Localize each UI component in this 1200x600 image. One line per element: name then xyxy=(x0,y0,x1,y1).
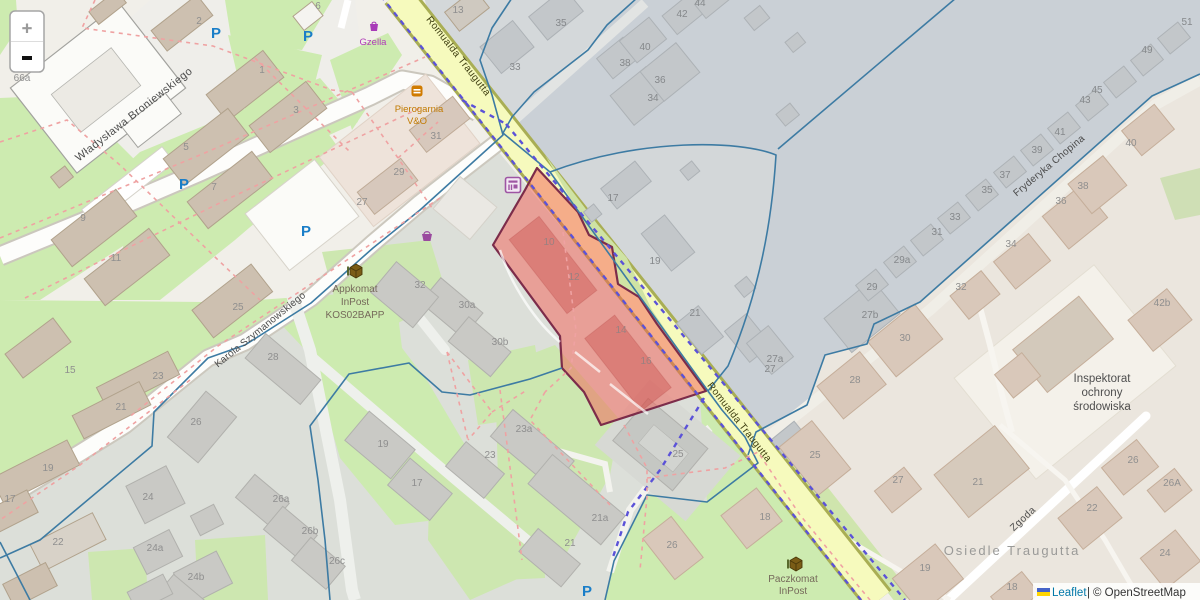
svg-text:© OpenStreetMap: © OpenStreetMap xyxy=(1093,587,1186,599)
svg-text:1: 1 xyxy=(259,65,265,76)
svg-text:16: 16 xyxy=(640,356,652,367)
svg-text:32: 32 xyxy=(414,280,426,291)
svg-text:24: 24 xyxy=(142,492,154,503)
svg-text:38: 38 xyxy=(619,58,631,69)
svg-text:51: 51 xyxy=(1181,17,1193,28)
svg-text:18: 18 xyxy=(759,512,771,523)
svg-text:27b: 27b xyxy=(862,310,879,321)
svg-text:25: 25 xyxy=(672,449,684,460)
svg-text:P: P xyxy=(179,176,189,193)
svg-text:KOS02BAPP: KOS02BAPP xyxy=(326,310,385,321)
svg-text:32: 32 xyxy=(955,282,967,293)
svg-text:3: 3 xyxy=(293,105,299,116)
svg-text:26: 26 xyxy=(1127,455,1139,466)
svg-text:23a: 23a xyxy=(516,424,533,435)
svg-text:35: 35 xyxy=(981,185,993,196)
svg-text:Leaflet: Leaflet xyxy=(1052,587,1087,599)
svg-text:36: 36 xyxy=(654,75,666,86)
svg-text:38: 38 xyxy=(1077,181,1089,192)
svg-text:21: 21 xyxy=(972,477,984,488)
svg-text:P: P xyxy=(303,28,313,45)
svg-text:9: 9 xyxy=(80,213,86,224)
svg-text:28: 28 xyxy=(267,352,279,363)
svg-text:InPost: InPost xyxy=(341,297,370,308)
svg-text:Pierogarnia: Pierogarnia xyxy=(395,104,444,115)
svg-text:34: 34 xyxy=(1005,239,1017,250)
svg-text:2: 2 xyxy=(196,16,202,27)
svg-text:26c: 26c xyxy=(329,556,345,567)
svg-text:14: 14 xyxy=(615,325,627,336)
svg-text:35: 35 xyxy=(555,18,567,29)
svg-text:26: 26 xyxy=(190,417,202,428)
svg-text:26a: 26a xyxy=(273,494,290,505)
svg-text:21: 21 xyxy=(115,402,127,413)
svg-text:25: 25 xyxy=(232,302,244,313)
svg-text:25: 25 xyxy=(809,450,821,461)
svg-text:43: 43 xyxy=(1079,95,1091,106)
svg-text:22: 22 xyxy=(52,537,64,548)
svg-text:28: 28 xyxy=(849,375,861,386)
svg-text:36: 36 xyxy=(1055,196,1067,207)
svg-text:30b: 30b xyxy=(492,337,509,348)
svg-text:24a: 24a xyxy=(147,543,164,554)
svg-text:6: 6 xyxy=(315,1,321,12)
svg-text:Appkomat: Appkomat xyxy=(332,284,377,295)
svg-text:Inspektorat: Inspektorat xyxy=(1074,373,1132,385)
svg-text:27: 27 xyxy=(356,197,368,208)
svg-text:21: 21 xyxy=(689,308,701,319)
svg-text:34: 34 xyxy=(647,93,659,104)
svg-text:19: 19 xyxy=(377,439,389,450)
svg-text:5: 5 xyxy=(183,142,189,153)
svg-text:30: 30 xyxy=(899,333,911,344)
svg-text:39: 39 xyxy=(1031,145,1043,156)
svg-text:42b: 42b xyxy=(1154,298,1171,309)
svg-text:P: P xyxy=(301,223,311,240)
svg-text:11: 11 xyxy=(111,253,122,264)
svg-text:InPost: InPost xyxy=(779,586,808,597)
svg-text:19: 19 xyxy=(649,256,661,267)
svg-text:17: 17 xyxy=(411,478,423,489)
svg-text:29: 29 xyxy=(866,282,878,293)
svg-text:41: 41 xyxy=(1054,127,1066,138)
svg-text:Gzella: Gzella xyxy=(360,37,388,48)
svg-text:66a: 66a xyxy=(14,73,31,84)
svg-text:19: 19 xyxy=(42,463,54,474)
svg-text:środowiska: środowiska xyxy=(1073,401,1131,413)
svg-text:Osiedle Traugutta: Osiedle Traugutta xyxy=(944,543,1081,558)
svg-text:45: 45 xyxy=(1091,85,1103,96)
svg-text:22: 22 xyxy=(1086,503,1098,514)
svg-text:|: | xyxy=(1087,587,1090,599)
svg-text:7: 7 xyxy=(211,182,217,193)
svg-text:P: P xyxy=(582,583,592,600)
svg-text:21: 21 xyxy=(564,538,576,549)
svg-text:23: 23 xyxy=(484,450,496,461)
svg-text:Paczkomat: Paczkomat xyxy=(768,574,818,585)
svg-text:21a: 21a xyxy=(592,513,609,524)
svg-text:26b: 26b xyxy=(302,526,319,537)
svg-text:30a: 30a xyxy=(459,300,476,311)
svg-text:33: 33 xyxy=(509,62,521,73)
svg-text:29a: 29a xyxy=(894,255,911,266)
svg-text:29: 29 xyxy=(393,167,405,178)
svg-text:44: 44 xyxy=(694,0,706,9)
svg-text:17: 17 xyxy=(607,193,619,204)
svg-text:31: 31 xyxy=(430,131,442,142)
svg-text:27: 27 xyxy=(764,364,776,375)
svg-text:19: 19 xyxy=(919,563,931,574)
svg-text:15: 15 xyxy=(64,365,76,376)
svg-text:33: 33 xyxy=(949,212,961,223)
svg-text:13: 13 xyxy=(452,5,464,16)
svg-text:10: 10 xyxy=(543,237,555,248)
svg-text:40: 40 xyxy=(1125,138,1137,149)
svg-text:31: 31 xyxy=(931,227,943,238)
svg-text:18: 18 xyxy=(1006,582,1018,593)
svg-text:24b: 24b xyxy=(188,572,205,583)
svg-text:23: 23 xyxy=(152,371,164,382)
svg-text:V&O: V&O xyxy=(407,116,427,127)
svg-text:37: 37 xyxy=(999,170,1011,181)
svg-text:ochrony: ochrony xyxy=(1082,387,1123,399)
svg-text:P: P xyxy=(211,25,221,42)
svg-text:26A: 26A xyxy=(1163,478,1181,489)
svg-text:40: 40 xyxy=(639,42,651,53)
svg-text:24: 24 xyxy=(1159,548,1171,559)
svg-text:49: 49 xyxy=(1141,45,1153,56)
svg-text:26: 26 xyxy=(666,540,678,551)
svg-text:27: 27 xyxy=(892,475,904,486)
svg-text:17: 17 xyxy=(4,494,16,505)
svg-text:12: 12 xyxy=(568,272,580,283)
svg-text:42: 42 xyxy=(676,9,688,20)
